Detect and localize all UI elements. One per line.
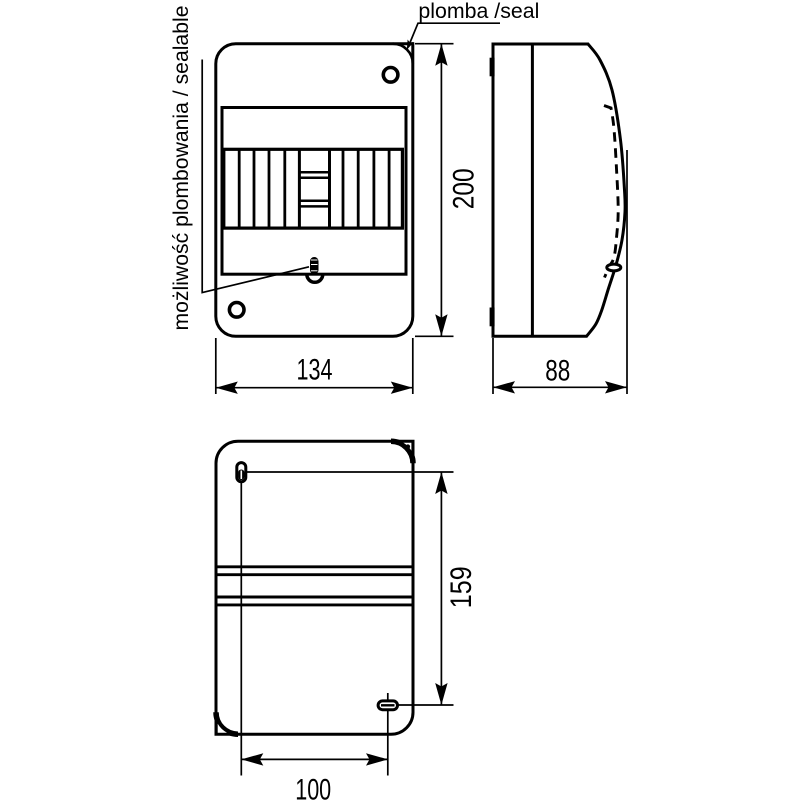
svg-text:88: 88	[545, 355, 570, 388]
svg-text:134: 134	[297, 354, 333, 387]
svg-text:plomba /seal: plomba /seal	[418, 0, 539, 23]
svg-text:100: 100	[295, 774, 331, 800]
svg-text:możliwość plombowania / sealab: możliwość plombowania / sealable	[170, 6, 193, 331]
svg-text:200: 200	[448, 168, 481, 209]
svg-text:159: 159	[445, 566, 478, 608]
